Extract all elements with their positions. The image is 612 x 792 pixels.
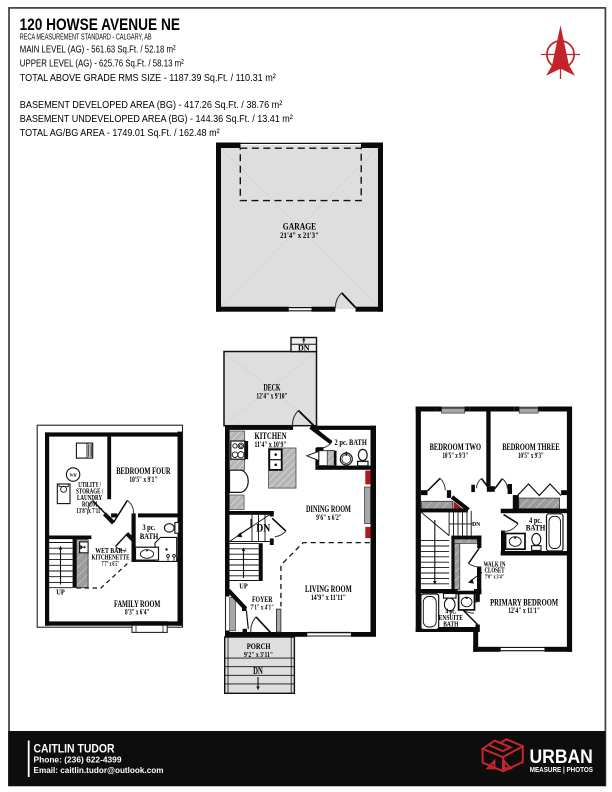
svg-text:12'4" x 9'10": 12'4" x 9'10" — [256, 392, 287, 401]
svg-text:WH: WH — [70, 472, 78, 477]
svg-text:DN: DN — [253, 666, 263, 677]
svg-text:TOTAL AG/BG AREA - 1749.01 Sq.: TOTAL AG/BG AREA - 1749.01 Sq.Ft. / 162.… — [20, 128, 220, 139]
svg-text:10'5" x 9'1": 10'5" x 9'1" — [129, 475, 157, 484]
svg-text:12'4" x 11'1": 12'4" x 11'1" — [508, 606, 540, 615]
svg-text:10'5" x 9'3": 10'5" x 9'3" — [518, 451, 544, 460]
svg-text:DN: DN — [472, 521, 480, 528]
svg-text:8'3" x 6'4": 8'3" x 6'4" — [125, 608, 149, 617]
svg-text:UP: UP — [239, 582, 248, 590]
svg-text:URBAN: URBAN — [530, 747, 593, 768]
svg-text:BASEMENT DEVELOPED AREA (BG) -: BASEMENT DEVELOPED AREA (BG) - 417.26 Sq… — [20, 100, 283, 111]
svg-text:BASEMENT UNDEVELOPED AREA (BG): BASEMENT UNDEVELOPED AREA (BG) - 144.36 … — [20, 114, 293, 125]
svg-text:Email: caitlin.tudor@outlook.: Email: caitlin.tudor@outlook.com — [34, 765, 164, 775]
svg-text:9'6" x 6'2": 9'6" x 6'2" — [316, 513, 342, 522]
svg-text:11'4" x 10'9": 11'4" x 10'9" — [255, 440, 287, 449]
svg-text:7'1" x 4'1": 7'1" x 4'1" — [250, 603, 274, 612]
svg-text:Phone: (236) 622-4399: Phone: (236) 622-4399 — [34, 755, 122, 765]
svg-text:UP: UP — [56, 589, 65, 597]
svg-text:BATH: BATH — [443, 621, 459, 628]
svg-text:9'2" x 3'11": 9'2" x 3'11" — [244, 650, 273, 659]
svg-text:MAIN LEVEL (AG) - 561.63 Sq.Ft: MAIN LEVEL (AG) - 561.63 Sq.Ft. / 52.18 … — [20, 45, 176, 56]
svg-text:14'9" x 11'11": 14'9" x 11'11" — [311, 593, 346, 602]
svg-text:UPPER LEVEL (AG) - 625.76 Sq.F: UPPER LEVEL (AG) - 625.76 Sq.Ft. / 58.13… — [20, 59, 184, 70]
svg-text:7'7" x 6'5": 7'7" x 6'5" — [102, 561, 120, 568]
svg-text:7'0" x 3'4": 7'0" x 3'4" — [485, 573, 504, 580]
svg-text:TOTAL ABOVE GRADE RMS SIZE - 1: TOTAL ABOVE GRADE RMS SIZE - 1187.39 Sq.… — [20, 73, 276, 84]
svg-text:13'8" x 7'11": 13'8" x 7'11" — [76, 508, 103, 515]
svg-text:10'5" x 9'3": 10'5" x 9'3" — [442, 451, 468, 460]
svg-text:BATH: BATH — [526, 524, 546, 533]
svg-text:DN: DN — [256, 523, 271, 535]
svg-text:CAITLIN TUDOR: CAITLIN TUDOR — [34, 742, 115, 756]
svg-text:120 HOWSE AVENUE NE: 120 HOWSE AVENUE NE — [20, 16, 181, 34]
svg-text:RECA MEASUREMENT STANDARD - CA: RECA MEASUREMENT STANDARD - CALGARY, AB — [20, 33, 152, 42]
svg-text:BATH: BATH — [140, 532, 159, 541]
svg-text:2 pc. BATH: 2 pc. BATH — [335, 437, 367, 447]
svg-text:MEASURE | PHOTOS: MEASURE | PHOTOS — [530, 766, 594, 774]
svg-text:DN: DN — [298, 343, 310, 353]
svg-text:21'4" x 21'3": 21'4" x 21'3" — [280, 231, 319, 240]
